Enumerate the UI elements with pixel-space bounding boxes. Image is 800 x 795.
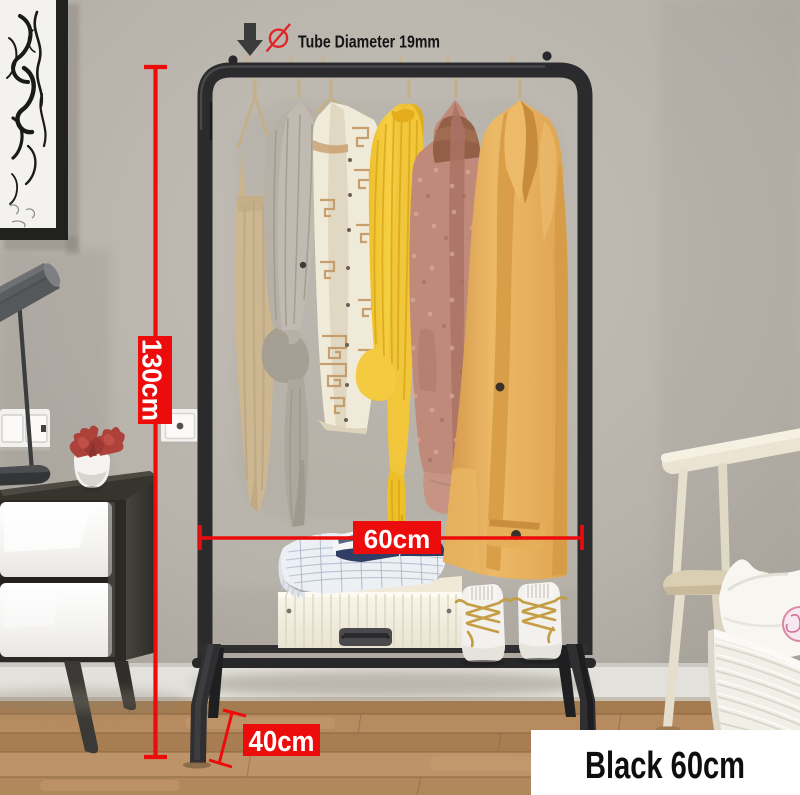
svg-text:60cm: 60cm: [364, 524, 431, 554]
svg-text:Black 60cm: Black 60cm: [585, 745, 745, 787]
svg-text:40cm: 40cm: [249, 726, 315, 758]
svg-text:130cm: 130cm: [137, 339, 168, 421]
svg-text:Tube Diameter 19mm: Tube Diameter 19mm: [298, 32, 440, 52]
